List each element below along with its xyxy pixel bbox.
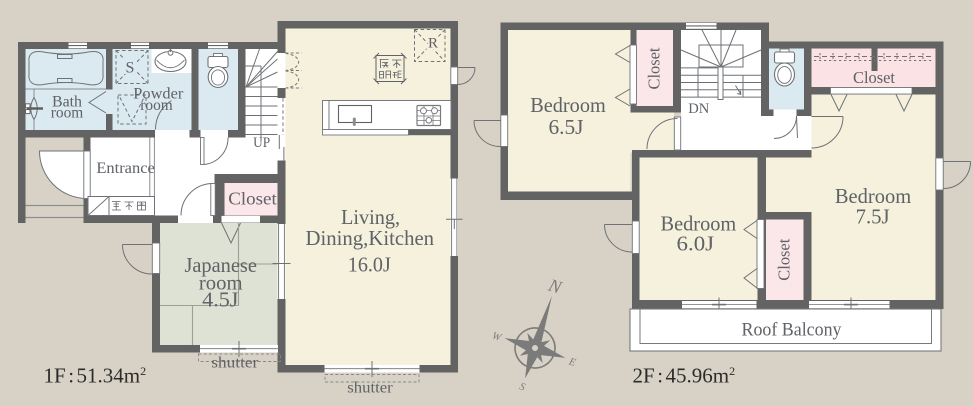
- svg-text:7.5J: 7.5J: [856, 205, 890, 229]
- svg-text:Bedroom: Bedroom: [530, 93, 606, 117]
- svg-text:S: S: [126, 60, 135, 77]
- svg-text:Roof Balcony: Roof Balcony: [742, 320, 842, 341]
- svg-text:6.5J: 6.5J: [549, 115, 584, 139]
- svg-text:2F:45.96m2: 2F:45.96m2: [633, 363, 736, 387]
- svg-text:Closet: Closet: [853, 68, 895, 87]
- svg-text:4.5J: 4.5J: [202, 288, 238, 312]
- svg-text:1F:51.34m2: 1F:51.34m2: [44, 363, 147, 387]
- svg-text:Entrance: Entrance: [96, 160, 155, 177]
- svg-text:Dining,Kitchen: Dining,Kitchen: [306, 226, 435, 250]
- svg-text:16.0J: 16.0J: [348, 253, 391, 277]
- svg-text:Closet: Closet: [645, 47, 664, 89]
- svg-text:room: room: [140, 97, 173, 114]
- svg-text:Closet: Closet: [228, 189, 277, 209]
- svg-text:room: room: [51, 105, 84, 122]
- svg-text:UP: UP: [253, 135, 270, 151]
- svg-text:R: R: [428, 36, 438, 52]
- svg-text:shutter: shutter: [347, 380, 393, 397]
- svg-text:DN: DN: [688, 101, 709, 117]
- svg-text:6.0J: 6.0J: [677, 232, 715, 256]
- svg-text:shutter: shutter: [211, 355, 259, 372]
- svg-text:Closet: Closet: [775, 238, 794, 280]
